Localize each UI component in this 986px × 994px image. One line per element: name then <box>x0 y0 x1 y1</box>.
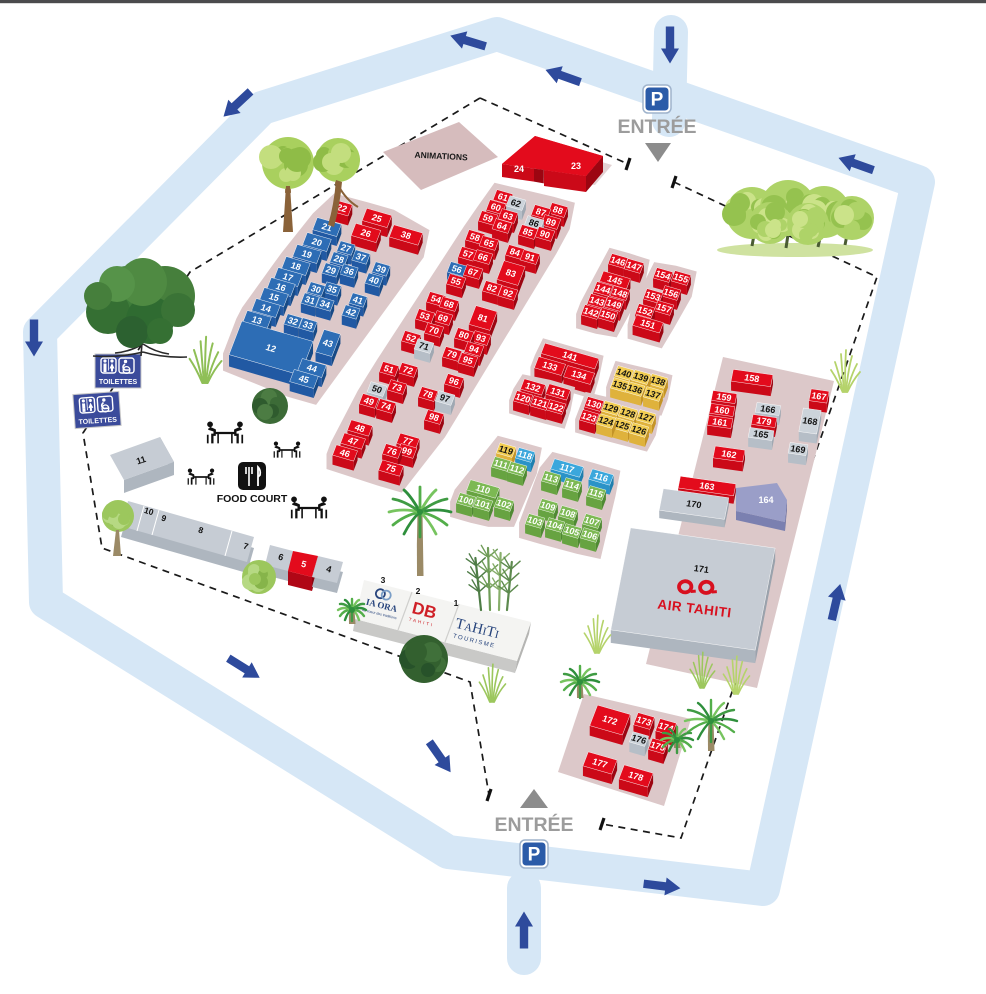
svg-text:159: 159 <box>716 391 733 403</box>
svg-text:1: 1 <box>454 598 459 608</box>
svg-text:160: 160 <box>714 404 731 416</box>
svg-text:171: 171 <box>693 563 709 575</box>
svg-text:TOILETTES: TOILETTES <box>99 379 138 386</box>
svg-text:ENTRÉE: ENTRÉE <box>494 813 573 836</box>
svg-text:168: 168 <box>802 415 819 427</box>
svg-text:2: 2 <box>416 586 421 596</box>
svg-text:ENTRÉE: ENTRÉE <box>617 115 696 138</box>
svg-text:179: 179 <box>756 415 773 427</box>
svg-text:167: 167 <box>811 390 828 402</box>
svg-text:P: P <box>651 90 664 111</box>
svg-text:163: 163 <box>699 480 716 492</box>
svg-text:24: 24 <box>514 164 524 174</box>
svg-text:3: 3 <box>381 575 386 585</box>
svg-text:FOOD COURT: FOOD COURT <box>217 493 288 505</box>
svg-text:158: 158 <box>744 372 761 384</box>
svg-text:165: 165 <box>753 428 770 440</box>
svg-text:P: P <box>528 845 541 866</box>
svg-text:23: 23 <box>571 161 581 171</box>
svg-text:169: 169 <box>790 443 807 455</box>
svg-text:166: 166 <box>760 403 777 415</box>
svg-text:161: 161 <box>712 416 729 428</box>
svg-text:170: 170 <box>686 498 703 510</box>
svg-text:164: 164 <box>758 495 773 505</box>
svg-text:162: 162 <box>721 448 738 460</box>
